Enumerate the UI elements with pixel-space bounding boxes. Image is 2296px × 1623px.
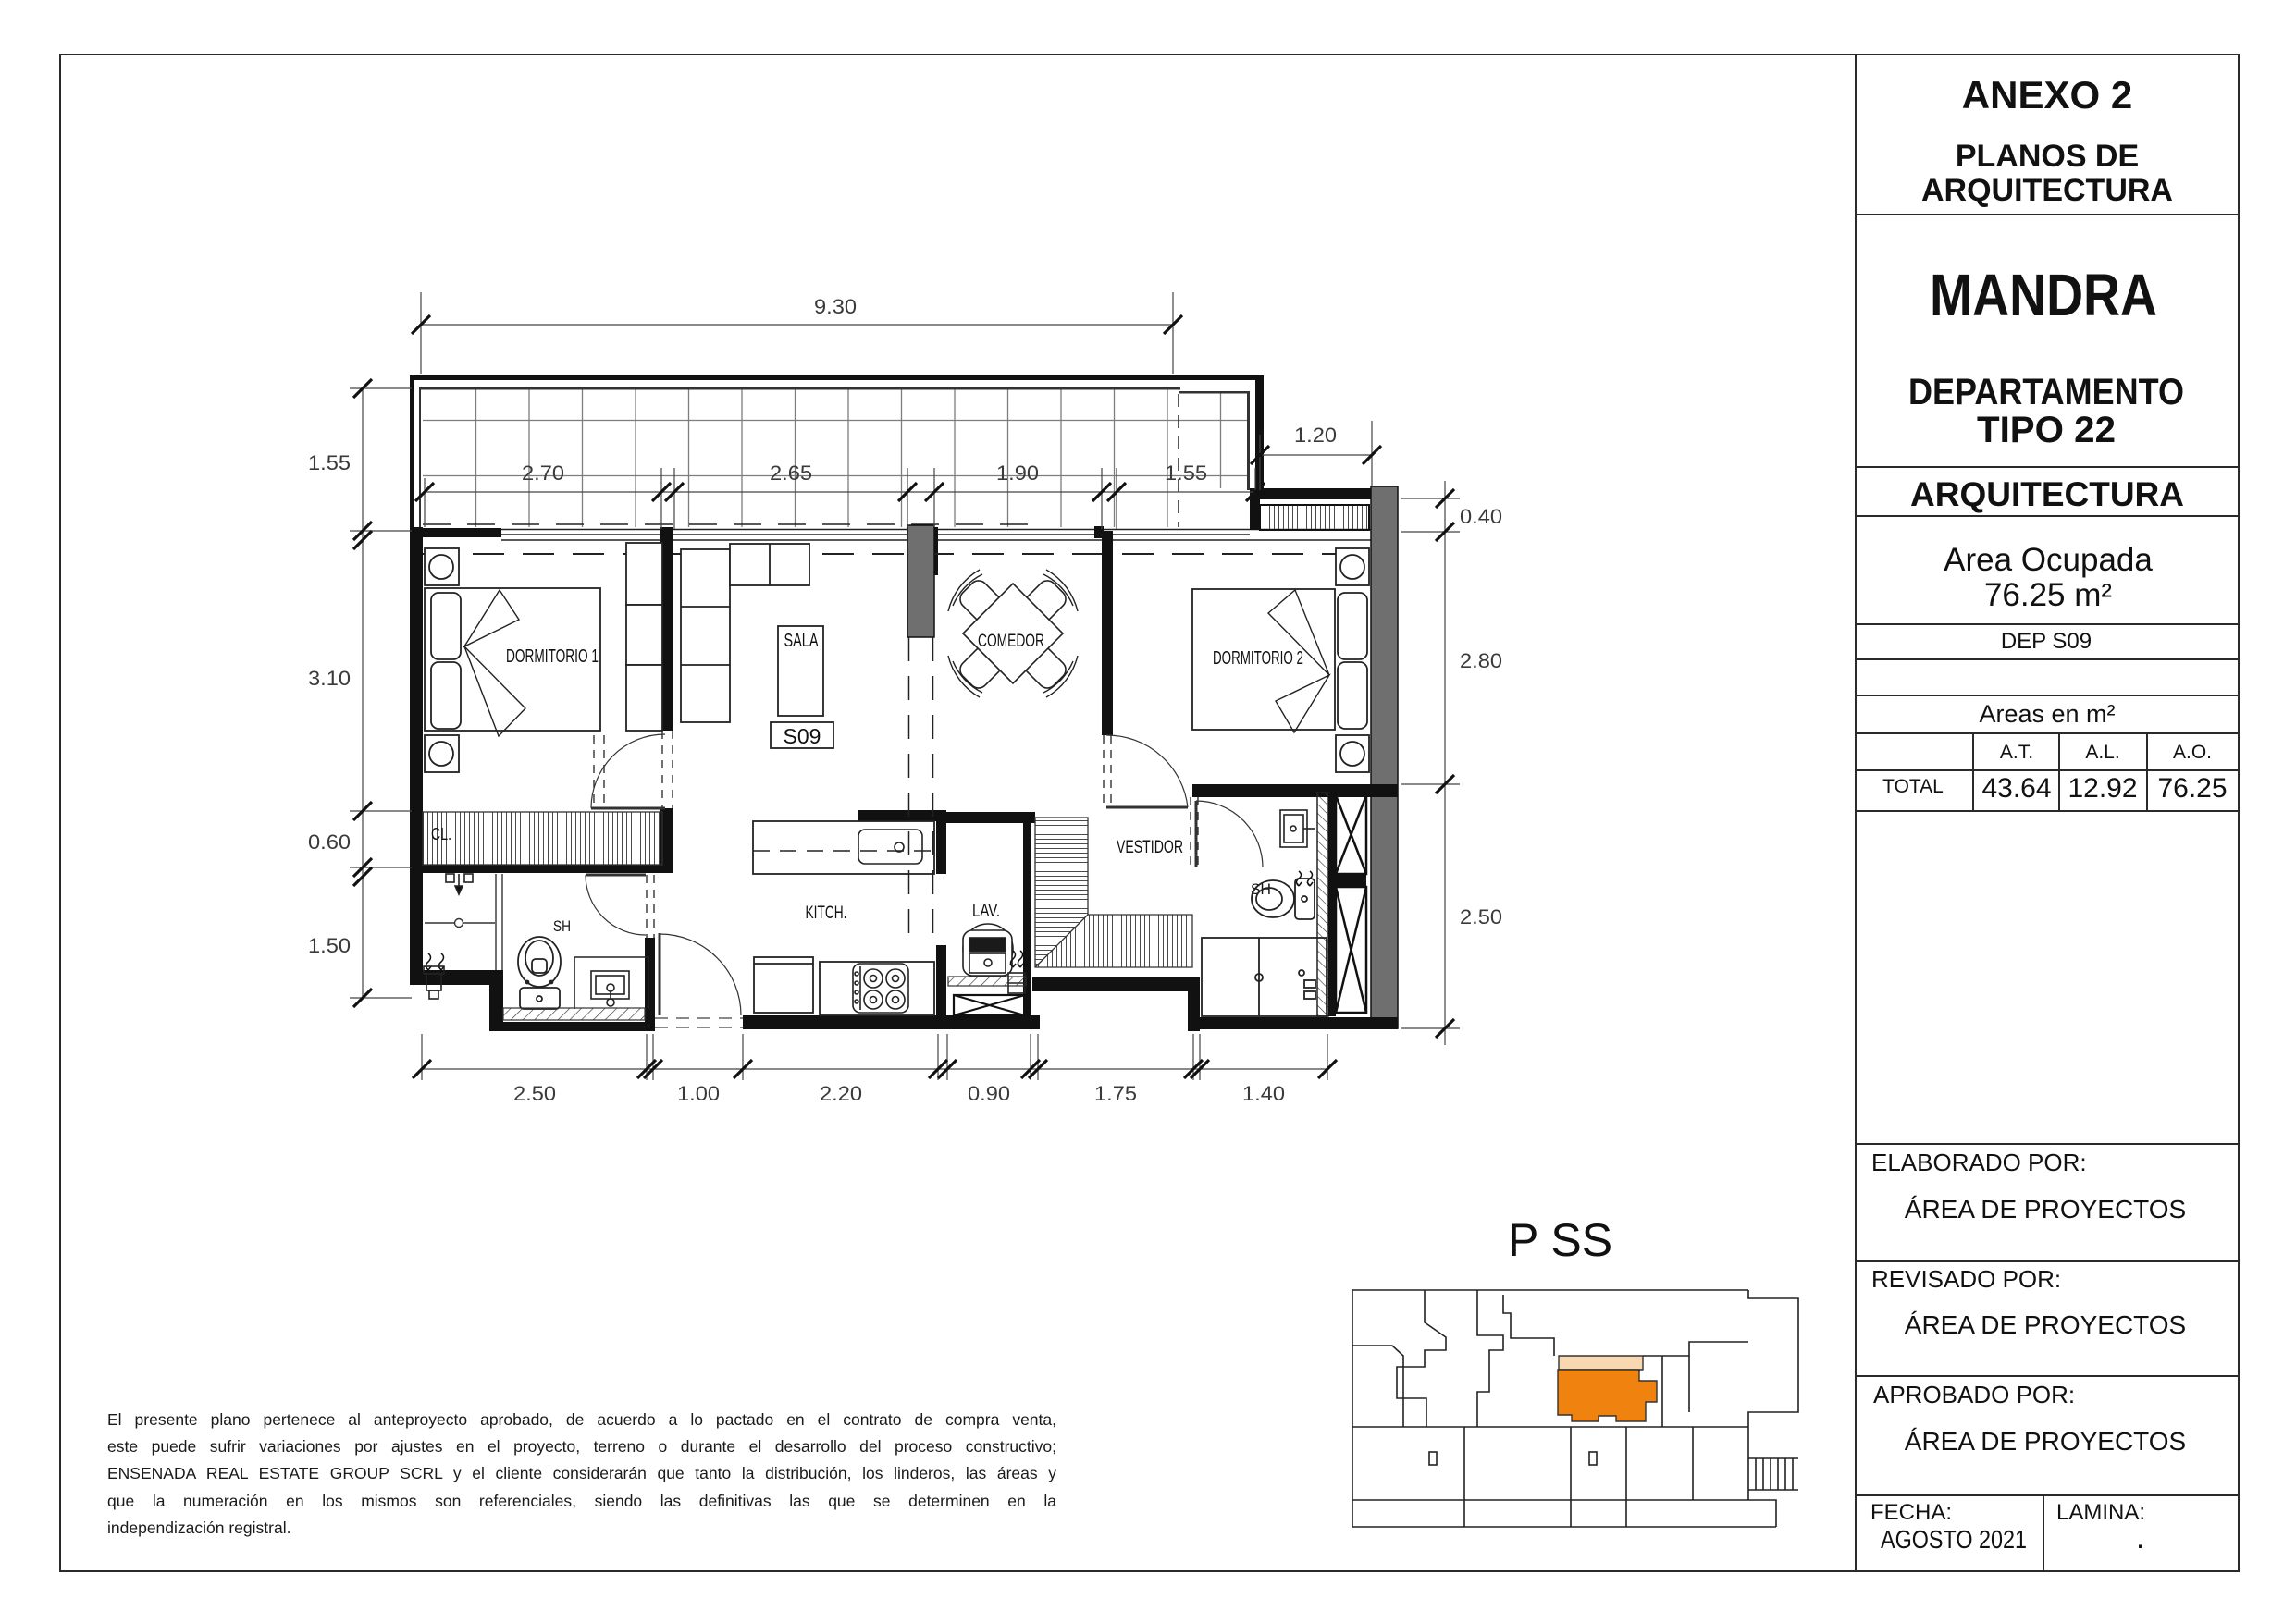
svg-text:2.70: 2.70: [522, 461, 564, 485]
svg-text:DEP S09: DEP S09: [2001, 629, 2092, 654]
svg-text:2.80: 2.80: [1460, 649, 1502, 672]
svg-text:0.90: 0.90: [968, 1082, 1010, 1105]
svg-text:ELABORADO POR:: ELABORADO POR:: [1871, 1149, 2087, 1176]
svg-text:2.50: 2.50: [513, 1082, 556, 1105]
svg-text:2.50: 2.50: [1460, 905, 1502, 928]
svg-text:KITCH.: KITCH.: [806, 904, 847, 923]
svg-text:S09: S09: [784, 724, 821, 748]
svg-text:1.40: 1.40: [1242, 1082, 1285, 1105]
svg-text:ÁREA DE PROYECTOS: ÁREA DE PROYECTOS: [1905, 1427, 2186, 1456]
svg-text:12.92: 12.92: [2068, 773, 2137, 804]
svg-text:.: .: [2136, 1520, 2144, 1555]
svg-text:76.25 m²: 76.25 m²: [1984, 577, 2112, 613]
svg-text:Areas en m²: Areas en m²: [1979, 700, 2115, 728]
svg-text:SALA: SALA: [784, 631, 819, 651]
svg-text:AGOSTO 2021: AGOSTO 2021: [1881, 1525, 2027, 1554]
svg-text:TIPO 22: TIPO 22: [1977, 410, 2116, 450]
svg-text:TOTAL: TOTAL: [1882, 776, 1944, 797]
svg-text:1.50: 1.50: [308, 934, 351, 957]
svg-text:DORMITORIO 1: DORMITORIO 1: [506, 646, 599, 667]
svg-text:ÁREA DE PROYECTOS: ÁREA DE PROYECTOS: [1905, 1195, 2186, 1223]
svg-text:SH: SH: [553, 917, 571, 935]
svg-text:DEPARTAMENTO: DEPARTAMENTO: [1908, 372, 2184, 412]
svg-text:PLANOS DE: PLANOS DE: [1956, 139, 2139, 174]
svg-text:3.10: 3.10: [308, 667, 351, 690]
svg-text:1.55: 1.55: [1165, 461, 1207, 485]
svg-text:0.60: 0.60: [308, 830, 351, 854]
svg-text:ANEXO 2: ANEXO 2: [1962, 73, 2132, 117]
svg-text:1.00: 1.00: [677, 1082, 720, 1105]
svg-text:A.L.: A.L.: [2085, 742, 2119, 763]
svg-text:A.T.: A.T.: [2000, 742, 2033, 763]
svg-text:9.30: 9.30: [814, 295, 857, 318]
svg-text:REVISADO POR:: REVISADO POR:: [1871, 1265, 2061, 1293]
svg-text:CL.: CL.: [431, 825, 451, 843]
svg-text:ARQUITECTURA: ARQUITECTURA: [1921, 173, 2173, 208]
svg-text:A.O.: A.O.: [2173, 742, 2212, 763]
svg-text:VESTIDOR: VESTIDOR: [1117, 838, 1183, 857]
svg-text:1.55: 1.55: [308, 451, 351, 474]
svg-text:43.64: 43.64: [1981, 773, 2051, 804]
svg-text:LAV.: LAV.: [972, 902, 1000, 921]
svg-text:1.20: 1.20: [1294, 424, 1337, 447]
svg-text:DORMITORIO 2: DORMITORIO 2: [1213, 648, 1303, 669]
svg-text:2.20: 2.20: [820, 1082, 862, 1105]
svg-text:FECHA:: FECHA:: [1870, 1500, 1952, 1525]
svg-text:MANDRA: MANDRA: [1930, 262, 2157, 328]
svg-text:COMEDOR: COMEDOR: [978, 632, 1044, 651]
svg-text:APROBADO POR:: APROBADO POR:: [1873, 1381, 2075, 1408]
svg-text:2.65: 2.65: [770, 461, 812, 485]
svg-text:ARQUITECTURA: ARQUITECTURA: [1910, 475, 2184, 513]
svg-text:1.75: 1.75: [1094, 1082, 1137, 1105]
svg-text:ÁREA DE PROYECTOS: ÁREA DE PROYECTOS: [1905, 1310, 2186, 1339]
svg-text:Area Ocupada: Area Ocupada: [1944, 542, 2153, 578]
svg-text:76.25: 76.25: [2157, 773, 2227, 804]
svg-text:LAMINA:: LAMINA:: [2056, 1500, 2145, 1525]
svg-text:P SS: P SS: [1508, 1214, 1612, 1266]
svg-text:1.90: 1.90: [996, 461, 1039, 485]
svg-text:0.40: 0.40: [1460, 505, 1502, 528]
